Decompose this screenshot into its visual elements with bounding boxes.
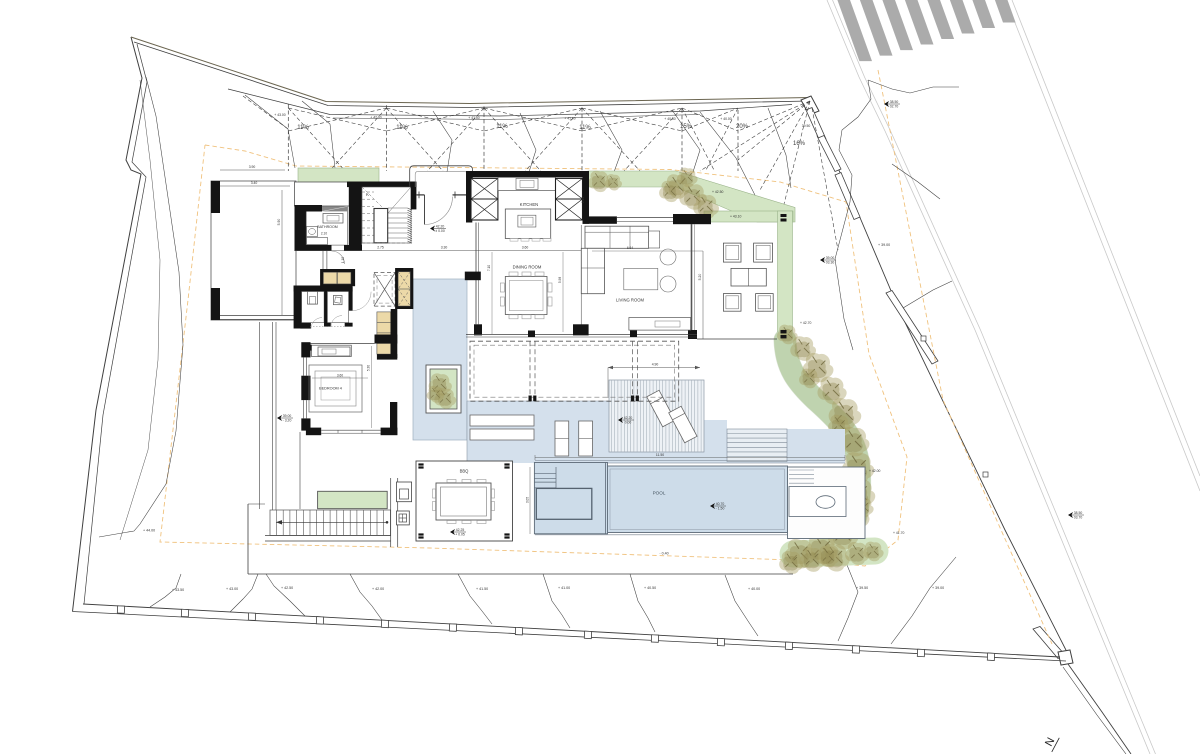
svg-text:+ 40.50: + 40.50 bbox=[664, 117, 676, 121]
svg-text:16%: 16% bbox=[793, 141, 806, 147]
svg-text:BBQ: BBQ bbox=[460, 469, 470, 474]
svg-text:11%: 11% bbox=[396, 125, 408, 131]
svg-text:- 3.20: - 3.20 bbox=[283, 419, 292, 423]
svg-text:+ 41.70: + 41.70 bbox=[893, 531, 905, 535]
svg-text:38.50: 38.50 bbox=[1074, 511, 1083, 515]
svg-text:11%: 11% bbox=[579, 125, 591, 131]
svg-text:4.90: 4.90 bbox=[652, 363, 659, 367]
svg-text:3.40: 3.40 bbox=[251, 181, 258, 185]
svg-text:+ 42.50: + 42.50 bbox=[712, 190, 724, 194]
svg-text:7.10: 7.10 bbox=[487, 265, 491, 271]
svg-text:11.50: 11.50 bbox=[656, 453, 664, 457]
svg-text:+ 39.50: + 39.50 bbox=[856, 586, 868, 590]
svg-text:3.90: 3.90 bbox=[249, 165, 256, 169]
svg-text:2.75: 2.75 bbox=[377, 246, 384, 250]
svg-text:DINING ROOM: DINING ROOM bbox=[513, 265, 542, 270]
svg-text:+ 41.50: + 41.50 bbox=[476, 587, 488, 591]
svg-text:+ 41.50: + 41.50 bbox=[468, 116, 480, 120]
svg-text:42.25: 42.25 bbox=[456, 528, 465, 532]
svg-text:2.10: 2.10 bbox=[321, 232, 327, 236]
svg-text:3.60: 3.60 bbox=[522, 246, 529, 250]
svg-text:+ 43.00: + 43.00 bbox=[226, 587, 238, 591]
svg-text:+ 40.00: + 40.00 bbox=[720, 117, 732, 121]
svg-text:38.50: 38.50 bbox=[890, 100, 899, 104]
svg-text:LIVING ROOM: LIVING ROOM bbox=[616, 298, 644, 303]
svg-text:39.50: 39.50 bbox=[802, 124, 811, 128]
svg-text:+ 44.00: + 44.00 bbox=[143, 529, 155, 533]
svg-text:+ 40.00: + 40.00 bbox=[748, 587, 760, 591]
svg-text:+ 42.00: + 42.00 bbox=[869, 469, 881, 473]
svg-text:3.05: 3.05 bbox=[526, 497, 530, 503]
svg-text:+ 0.05: + 0.05 bbox=[455, 533, 465, 537]
svg-text:6.64: 6.64 bbox=[627, 246, 633, 250]
svg-text:5.30: 5.30 bbox=[367, 365, 371, 371]
svg-text:K: K bbox=[366, 192, 369, 197]
svg-text:+ 39.00: + 39.00 bbox=[878, 243, 890, 247]
svg-text:20%: 20% bbox=[736, 124, 749, 130]
svg-text:03.30: 03.30 bbox=[826, 261, 835, 265]
svg-text:- 0.40: - 0.40 bbox=[659, 552, 668, 556]
svg-text:+ 39.00: + 39.00 bbox=[932, 586, 944, 590]
svg-text:42.20: 42.20 bbox=[624, 416, 633, 420]
svg-text:+ 41.00: + 41.00 bbox=[558, 586, 570, 590]
svg-text:- 1.50: - 1.50 bbox=[716, 507, 725, 511]
svg-text:+ 43.00: + 43.00 bbox=[274, 113, 286, 117]
svg-text:POOL: POOL bbox=[653, 491, 666, 496]
svg-text:3.60: 3.60 bbox=[337, 374, 343, 378]
svg-text:5.20: 5.20 bbox=[698, 274, 702, 281]
svg-text:+ 43.10: + 43.10 bbox=[730, 215, 742, 219]
svg-text:+ 42.70: + 42.70 bbox=[800, 321, 812, 325]
svg-text:0.00: 0.00 bbox=[625, 421, 632, 425]
svg-text:+ 40.50: + 40.50 bbox=[644, 586, 656, 590]
svg-text:5.98: 5.98 bbox=[558, 277, 562, 283]
svg-text:3.30: 3.30 bbox=[441, 246, 448, 250]
svg-text:39.00: 39.00 bbox=[283, 414, 292, 418]
svg-text:11%: 11% bbox=[496, 124, 508, 130]
svg-text:+ 42.50: + 42.50 bbox=[281, 586, 293, 590]
svg-text:5.90: 5.90 bbox=[277, 219, 281, 226]
svg-text:2.10: 2.10 bbox=[581, 197, 585, 203]
svg-text:40.70: 40.70 bbox=[716, 502, 725, 506]
svg-text:39.00: 39.00 bbox=[826, 256, 835, 260]
svg-text:BATHROOM: BATHROOM bbox=[317, 225, 338, 229]
svg-text:15%: 15% bbox=[680, 124, 693, 130]
svg-text:02.70: 02.70 bbox=[890, 105, 899, 109]
svg-text:11%: 11% bbox=[297, 125, 309, 131]
svg-text:+ 43.50: + 43.50 bbox=[172, 588, 184, 592]
svg-text:BEDROOM 4: BEDROOM 4 bbox=[319, 387, 342, 391]
svg-text:± 0.00: ± 0.00 bbox=[435, 229, 445, 233]
svg-text:03.70: 03.70 bbox=[1074, 516, 1083, 520]
svg-text:1.10: 1.10 bbox=[341, 257, 345, 263]
svg-text:+ 42.00: + 42.00 bbox=[370, 116, 382, 120]
svg-text:KITCHEN: KITCHEN bbox=[520, 202, 538, 207]
svg-text:+ 42.00: + 42.00 bbox=[372, 587, 384, 591]
svg-text:+ 41.00: + 41.00 bbox=[564, 117, 576, 121]
svg-text:42.20: 42.20 bbox=[436, 225, 445, 229]
